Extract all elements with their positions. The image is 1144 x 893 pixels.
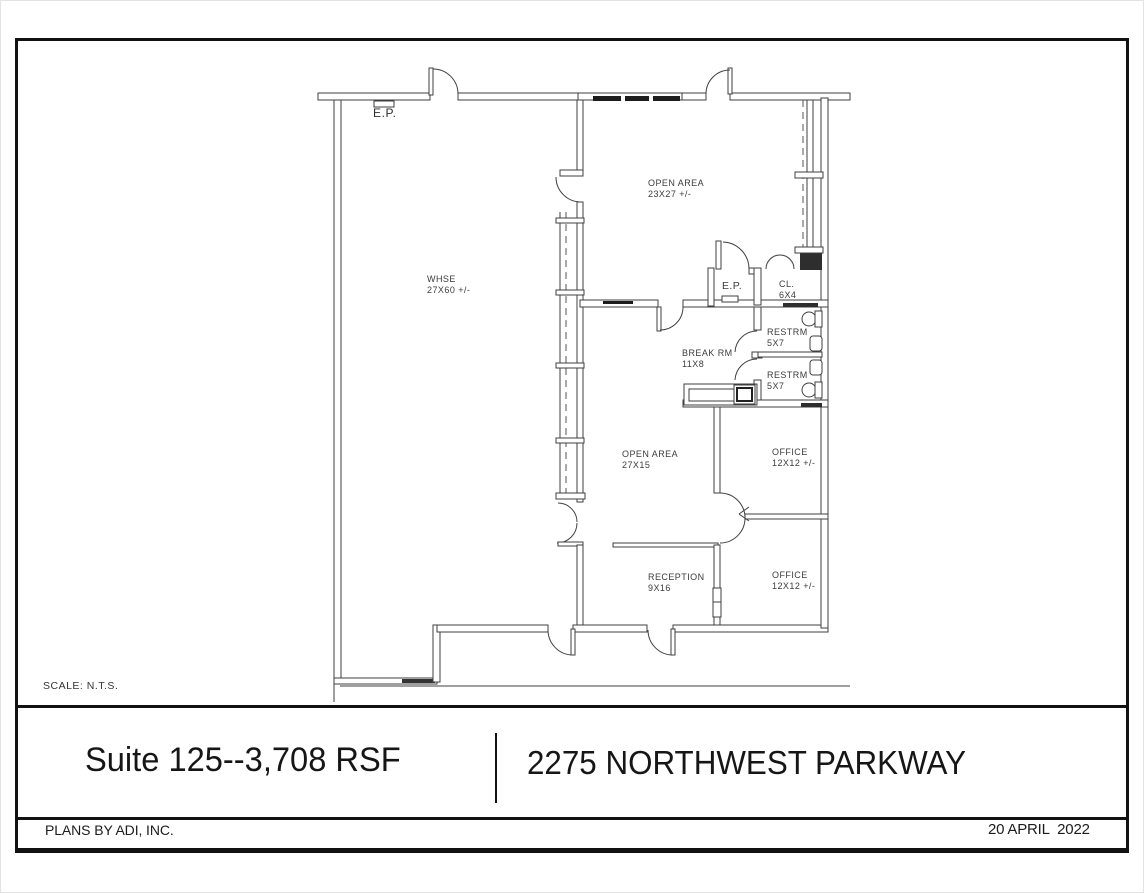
room-label-restroom-2: RESTRM5X7: [767, 370, 808, 392]
suite-title: Suite 125--3,708 RSF: [85, 741, 401, 780]
storefront-windows: [593, 95, 680, 102]
break-room-counter: [684, 384, 757, 405]
room-label-closet: CL.6X4: [779, 279, 796, 301]
room-label-office-2: OFFICE12X12 +/-: [772, 570, 815, 592]
room-label-office-1: OFFICE12X12 +/-: [772, 447, 815, 469]
floor-plan-sheet: E.P. OPEN AREA23X27 +/- WHSE27X60 +/- E.…: [0, 0, 1144, 893]
plans-by-credit: PLANS BY ADI, INC.: [45, 822, 174, 838]
exterior-walls: [318, 93, 850, 702]
ep-closet-walls: [708, 241, 761, 306]
scale-note: SCALE: N.T.S.: [43, 680, 118, 692]
property-address: 2275 NORTHWEST PARKWAY: [527, 744, 966, 782]
room-label-open-area-north: OPEN AREA23X27 +/-: [648, 178, 704, 200]
room-label-ep-top: E.P.: [373, 108, 397, 119]
demising-wall-columns: [556, 100, 585, 625]
room-label-whse: WHSE27X60 +/-: [427, 274, 470, 296]
room-label-ep-closet: E.P.: [722, 281, 742, 292]
south-entry-doors: [548, 629, 675, 655]
closet-doors: [766, 252, 822, 270]
office-walls: [714, 407, 828, 543]
room-label-open-area-south: OPEN AREA27X15: [622, 449, 678, 471]
east-column-strip: [795, 100, 823, 253]
room-label-reception: RECEPTION9X16: [648, 572, 705, 594]
room-label-break-room: BREAK RM11X8: [682, 348, 733, 370]
north-entry-doors: [429, 68, 732, 95]
room-label-restroom-1: RESTRM5X7: [767, 327, 808, 349]
plan-date: 20 APRIL 2022: [988, 821, 1090, 838]
